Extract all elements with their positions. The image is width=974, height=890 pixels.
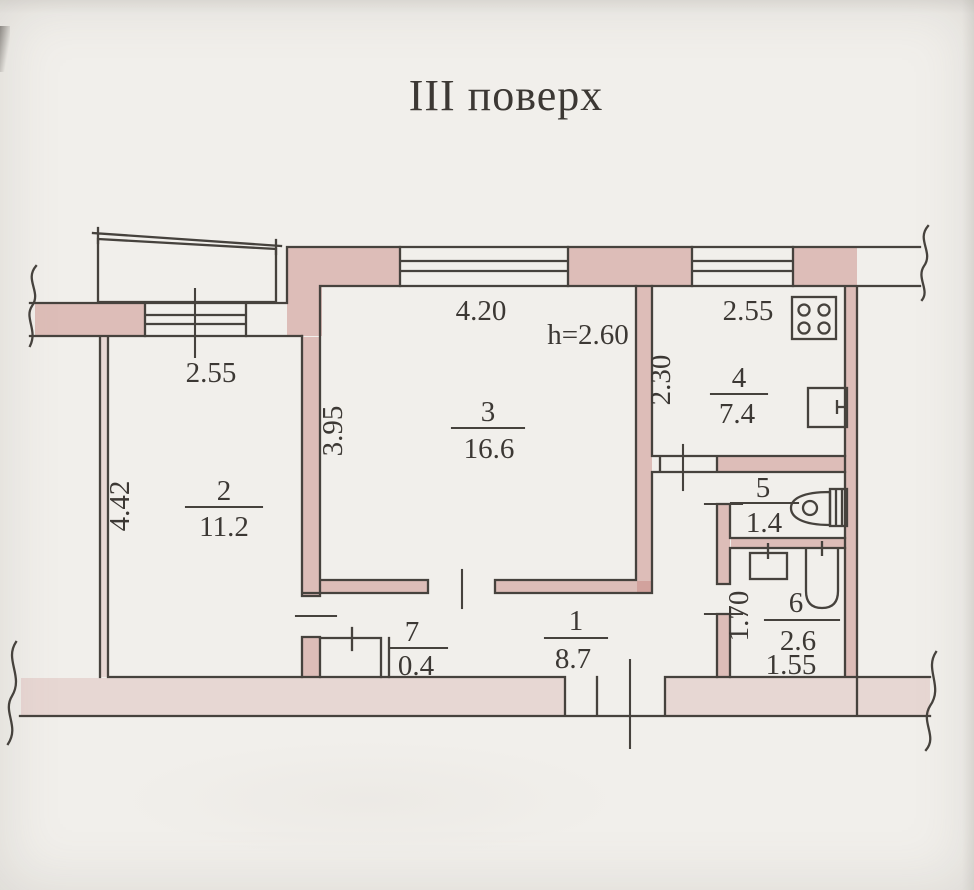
window <box>692 247 793 286</box>
room-6-area: 2.6 <box>780 625 816 657</box>
dim-kitchen-depth: 2.30 <box>645 355 677 406</box>
room-2-number: 2 <box>217 475 232 507</box>
wall <box>718 457 845 472</box>
room-2-label: 2 11.2 <box>186 475 262 543</box>
room-4-area: 7.4 <box>719 398 756 430</box>
room-5-label: 5 1.4 <box>731 472 798 539</box>
dim-room3-width: 4.20 <box>456 295 507 327</box>
room-3-number: 3 <box>481 396 496 428</box>
wall <box>495 581 652 593</box>
wall <box>568 248 692 286</box>
closet-partition <box>320 628 389 677</box>
dim-room2-depth: 4.42 <box>104 481 136 532</box>
dim-ceiling-height: h=2.60 <box>547 319 629 351</box>
wall <box>846 286 857 677</box>
dim-room2-window-width: 2.55 <box>186 357 237 389</box>
room-1-number: 1 <box>569 605 584 637</box>
room-4-label: 4 7.4 <box>711 362 767 430</box>
wall <box>303 337 320 596</box>
balcony <box>93 228 281 302</box>
wall <box>665 678 930 715</box>
room-1-area: 8.7 <box>555 643 591 675</box>
bathtub-icon <box>806 541 838 608</box>
wall <box>718 504 730 584</box>
wall <box>287 248 322 336</box>
room-7-area: 0.4 <box>398 650 435 682</box>
wall <box>637 287 652 593</box>
dim-room3-depth: 3.95 <box>317 406 349 457</box>
room-7-number: 7 <box>405 616 420 648</box>
page-title: III поверх <box>409 71 604 120</box>
room-5-area: 1.4 <box>746 507 783 539</box>
wall <box>21 678 565 715</box>
wall <box>303 638 320 677</box>
room-3-label: 3 16.6 <box>452 396 524 465</box>
room-3-area: 16.6 <box>464 433 515 465</box>
wall <box>322 248 400 286</box>
window <box>400 247 568 286</box>
room-6-label: 6 2.6 <box>765 587 839 657</box>
dim-kitchen-window-width: 2.55 <box>723 295 774 327</box>
wall <box>731 539 845 548</box>
room-7-label: 7 0.4 <box>391 616 447 682</box>
kitchen-sink-icon <box>808 388 848 427</box>
room-4-number: 4 <box>732 362 747 394</box>
wall <box>321 581 428 593</box>
room-1-label: 1 8.7 <box>545 605 607 675</box>
scanned-floor-plan-page: III поверх <box>0 0 974 890</box>
dim-bathroom-depth: 1.70 <box>723 591 755 642</box>
room-5-number: 5 <box>756 472 771 504</box>
wall <box>793 248 857 286</box>
wall <box>35 304 145 336</box>
room-6-number: 6 <box>789 587 804 619</box>
room-2-area: 11.2 <box>199 511 249 543</box>
stove-icon <box>792 297 836 339</box>
floor-plan-svg: III поверх <box>0 0 974 890</box>
toilet-icon <box>791 489 847 526</box>
